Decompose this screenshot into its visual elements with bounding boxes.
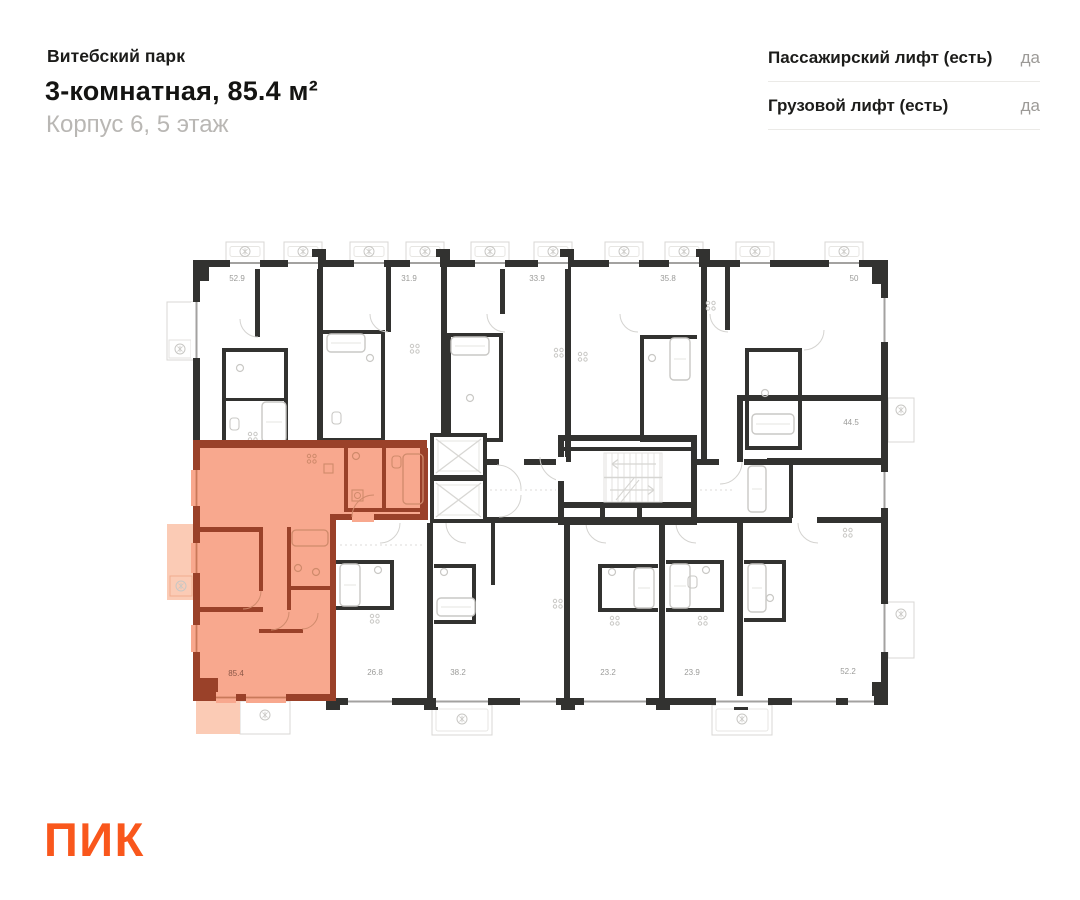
unit-area-label: 44.5 bbox=[843, 418, 859, 427]
unit-area-label: 52.2 bbox=[840, 667, 856, 676]
elevators-and-stairs bbox=[432, 435, 697, 525]
unit-area-label: 23.9 bbox=[684, 668, 700, 677]
unit-area-label: 31.9 bbox=[401, 274, 417, 283]
unit-area-label: 38.2 bbox=[450, 668, 466, 677]
unit-area-label: 33.9 bbox=[529, 274, 545, 283]
unit-area-label: 35.8 bbox=[660, 274, 676, 283]
unit-area-label: 26.8 bbox=[367, 668, 383, 677]
page: Витебский парк 3-комнатная, 85.4 м² Корп… bbox=[0, 0, 1080, 900]
unit-area-label: 52.9 bbox=[229, 274, 245, 283]
pik-logo[interactable]: ПИК bbox=[44, 812, 145, 867]
highlighted-unit-area-label: 85.4 bbox=[228, 669, 244, 678]
floor-plan: 52.931.933.935.85044.526.838.223.223.952… bbox=[0, 0, 1080, 900]
unit-area-label: 50 bbox=[850, 274, 859, 283]
unit-area-label: 23.2 bbox=[600, 668, 616, 677]
